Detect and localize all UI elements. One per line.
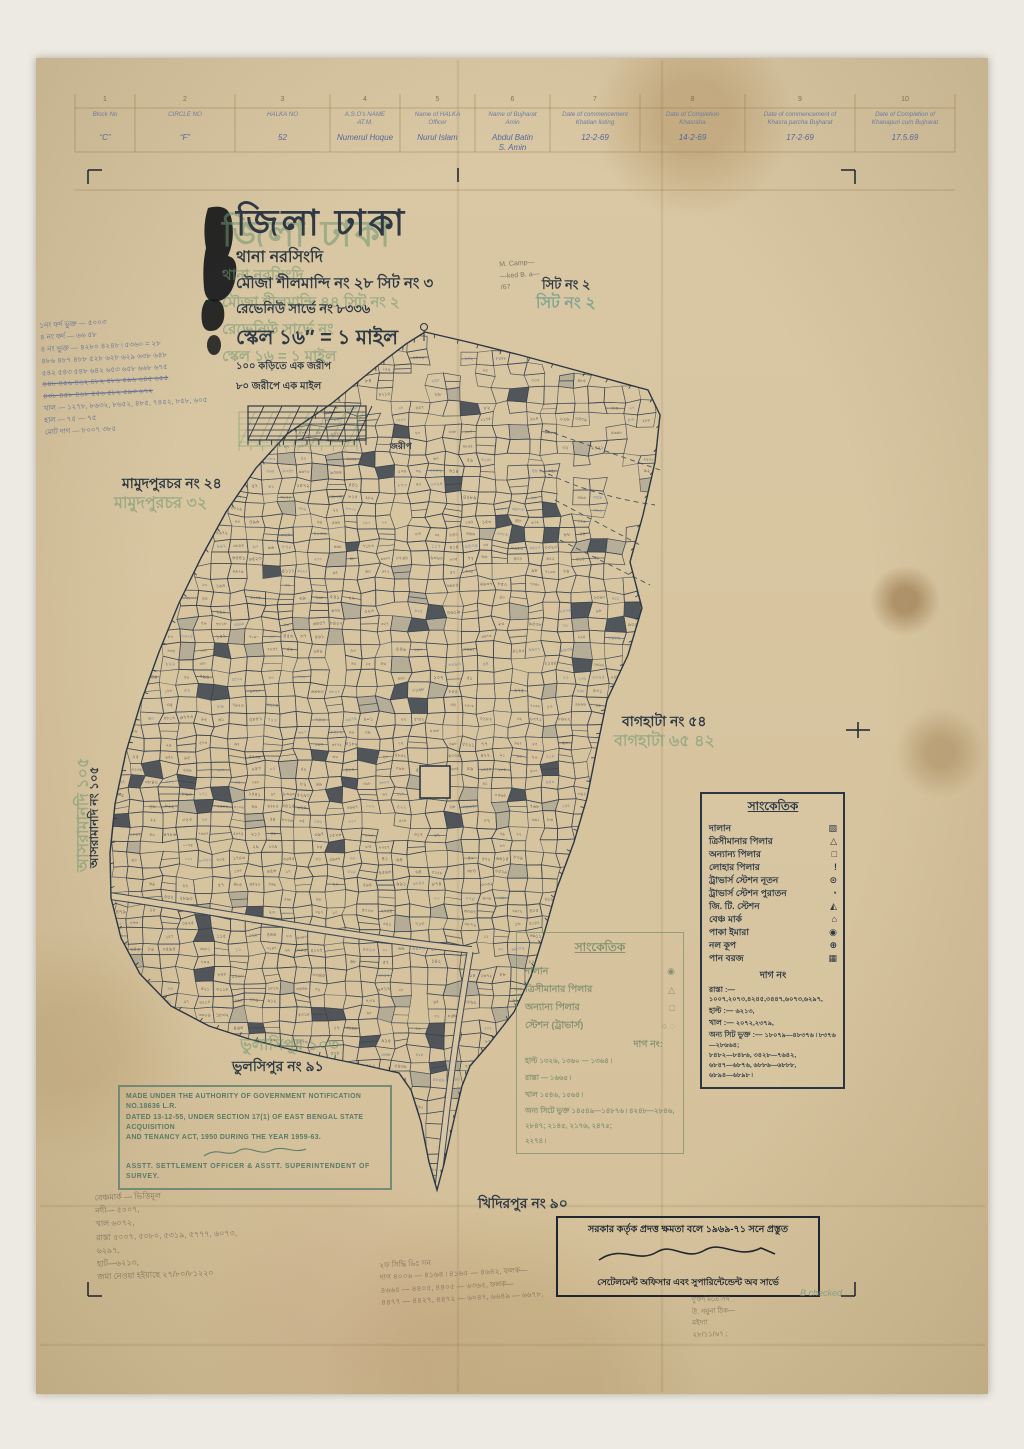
- thana-line: থানা নরসিংদি: [236, 248, 496, 268]
- table-value-cell: Nurul Islam: [400, 133, 475, 143]
- legend-item-entry: ত্রিসীমানার পিলার△: [525, 981, 675, 999]
- legend-dag-list: রাস্তা :— ১০০৭,২০৭৩,৪২৪৫,৩৪৪৭,৬০৭৩,৬২৯৭,…: [709, 984, 837, 1081]
- scale-note-2: ৮০ জরীপে এক মাইল: [236, 379, 496, 396]
- dag-entry: অন্য সিট ভুক্ত :— ১৮০৭৯—৪৮৩৭৬ ৷ ৮৩৭৬—২৮৬…: [709, 1029, 837, 1080]
- legend-item-pucca-building: পাকা ইমারা◉: [709, 926, 837, 939]
- legend-item-gt-station: জি. টি. স্টেশন◭: [709, 900, 837, 913]
- legend-faint-dag-title: দাগ নং:: [525, 1038, 675, 1053]
- dag-entry-value: ১৩২৬, ১৩৬০ — ১৩৬৪ ৷: [539, 1058, 611, 1065]
- legend-icon: ◉: [667, 963, 675, 980]
- legend-faint-title: সাংকেতিক: [525, 939, 675, 959]
- scalebar-label: জরীপ: [390, 439, 412, 454]
- dag-entry-value: — ১৬৬৫ ৷: [541, 1075, 571, 1082]
- dag-entry-label: রাস্তা: [525, 1073, 541, 1082]
- gt-station-icon: ◭: [830, 900, 837, 913]
- stamp-en-line3: AND TENANCY ACT, 1950 DURING THE YEAR 19…: [126, 1133, 384, 1143]
- dag-entry-label: হাল্ট :—: [709, 1006, 736, 1015]
- legend-item-label: অন্যান্য পিলার: [525, 999, 580, 1017]
- legend-item-betel-garden: পান বরজ▦: [709, 952, 837, 965]
- dag-entry-label: রাস্তা :—: [709, 985, 735, 994]
- legend-item-label: দালান: [709, 822, 731, 835]
- legend-item-label: ত্রিসীমানার পিলার: [525, 981, 592, 999]
- authority-stamp-en: MADE UNDER THE AUTHORITY OF GOVERNMENT N…: [118, 1085, 392, 1190]
- dag-entry-value: ১০০৭,২০৭৩,৪২৪৫,৩৪৪৭,৬০৭৩,৬২৯৭,: [709, 996, 823, 1003]
- dag-entry-value: ৬২১৩,: [736, 1008, 755, 1015]
- table-header-cell: CIRCLE NO: [135, 111, 235, 119]
- legend-item-bench-mark: বেঞ্চ মার্ক⌂: [709, 913, 837, 926]
- legend-item-entry: স্টেশন (ট্রাভার্স)○ ◌: [525, 1017, 675, 1035]
- revenue-line: রেভেনিউ সার্ভে নং ৮৩৩৬: [236, 301, 496, 317]
- survey-header-table: 1Block No“C”2CIRCLE NO“F”3HALKA NO524A.S…: [0, 0, 1024, 200]
- legend-item-traverse-station-old: ট্রাভার্স স্টেশন পুরাতন◔: [709, 887, 837, 900]
- margin-notes-bottom-right: দু'ফর্দ মতে সব উ. নমুনা ঠিক— মইদ্যা ২৮/১…: [691, 1291, 803, 1341]
- other-pillar-icon: □: [832, 848, 837, 861]
- label-mamudpurchar-ghost: মামুদপুরচর ৩২: [114, 490, 207, 517]
- mouza-line: মৌজা শীলমান্দি নং ২৮ সিট নং ৩: [236, 275, 496, 294]
- margin-notes-bottom-left: বেঞ্চমার্ক — ভিত্তিমূল নদী— ৫০০৭, খাল ৬০…: [94, 1181, 407, 1284]
- dag-entry: রাস্তা :— ১০০৭,২০৭৩,৪২৪৫,৩৪৪৭,৬০৭৩,৬২৯৭,: [709, 984, 837, 1006]
- traverse-station-old-icon: ◔: [832, 887, 837, 900]
- traverse-station-new-icon: ⊙: [829, 874, 837, 887]
- table-header-cell: Date of commencement of Khasra parcha Bu…: [745, 111, 855, 127]
- sheet-number-ghost: সিট নং ২: [536, 290, 596, 317]
- table-value-cell: 14-2-69: [640, 133, 745, 143]
- dag-entry: হাল্ট ১৩২৬, ১৩৬০ — ১৩৬৪ ৷: [525, 1053, 675, 1070]
- table-col-number: 4: [330, 96, 400, 103]
- label-tulshipur: ভুলসিপুর নং ৯১: [232, 1055, 324, 1079]
- table-header-cell: Date of commencement Khatian listing: [550, 111, 640, 127]
- legend-item-label: নল কূপ: [709, 939, 736, 952]
- table-col-number: 5: [400, 96, 475, 103]
- legend-item-label: পান বরজ: [709, 952, 744, 965]
- legend-item-label: জি. টি. স্টেশন: [709, 900, 760, 913]
- legend-faint-items: দালান◉ত্রিসীমানার পিলার△অন্যান্য পিলার□স…: [525, 963, 675, 1035]
- table-value-cell: 12-2-69: [550, 133, 640, 143]
- legend-item-label: ত্রিসীমানার পিলার: [709, 835, 773, 848]
- legend-dag-title: দাগ নং: [709, 969, 837, 984]
- legend-item-label: ট্রাভার্স স্টেশন নূতন: [709, 874, 778, 887]
- tri-junction-pillar-icon: △: [830, 835, 837, 848]
- table-value-cell: 52: [235, 133, 330, 143]
- legend-box: সাংকেতিক দালান▨ত্রিসীমানার পিলার△অন্যান্…: [700, 792, 845, 1089]
- table-value-cell: Numerul Hoque: [330, 133, 400, 143]
- scale-note-1: ১০০ কড়িতে এক জরীপ: [236, 359, 496, 376]
- legend-item-label: বেঞ্চ মার্ক: [709, 913, 742, 926]
- legend-item-iron-pillar: লোহার পিলার!: [709, 861, 837, 874]
- legend-item-hatched-building: দালান▨: [709, 822, 837, 835]
- table-col-number: 7: [550, 96, 640, 103]
- legend-item-other-pillar: অন্যান্য পিলার□: [709, 848, 837, 861]
- scanned-map-page: ৩৭৭০৫৪৭৯১১৬৮৮৬১৫৯১৩৮১৮৬২৬১৮৯৭৭৮৪৬৬৪৬১৫৪৪…: [0, 0, 1024, 1449]
- margin-notes-top-left: ১নং ফর্দ ভুক্ত — ৫০০৩৪ নং ফর্দ — ৬৬ ৫৮৪ …: [39, 308, 260, 438]
- dag-entry-label: খাল :—: [709, 1018, 736, 1027]
- dag-entry-label: খাল: [525, 1090, 540, 1099]
- legend-items: দালান▨ত্রিসীমানার পিলার△অন্যান্য পিলার□ল…: [709, 822, 837, 966]
- dag-entry-label: হাল্ট: [525, 1056, 539, 1065]
- legend-item-entry: দালান◉: [525, 963, 675, 981]
- dag-entry-value: ২০৭২,২৩৭৯,: [736, 1020, 774, 1027]
- sheet-pencil-note: M. Camp— —ked B. a— /67: [499, 257, 541, 294]
- stamp-en-line2: DATED 13-12-55, UNDER SECTION 17(1) OF E…: [126, 1113, 384, 1134]
- legend-title: সাংকেতিক: [709, 798, 837, 818]
- district-title: জিলা ঢাকা: [236, 205, 496, 241]
- table-col-number: 1: [75, 96, 135, 103]
- dag-entry: রাস্তা — ১৬৬৫ ৷: [525, 1070, 675, 1087]
- table-col-number: 2: [135, 96, 235, 103]
- table-header-cell: A.S.O's NAME AT.M.: [330, 111, 400, 127]
- label-baghata-ghost: বাগহাটা ৬৫ ৪২: [614, 728, 715, 755]
- table-value-cell: “C”: [75, 133, 135, 143]
- legend-item-tri-junction-pillar: ত্রিসীমানার পিলার△: [709, 835, 837, 848]
- iron-pillar-icon: !: [834, 861, 837, 874]
- dag-entry-label: অন্য সিটে ভুক্ত: [525, 1106, 571, 1115]
- table-header-cell: Name of HALKA Officer: [400, 111, 475, 127]
- dag-entry: খাল :— ২০৭২,২৩৭৯,: [709, 1017, 837, 1029]
- tube-well-icon: ⊕: [829, 939, 837, 952]
- scale-line: স্কেল ১৬″ = ১ মাইল: [236, 323, 496, 356]
- table-header-cell: Date of Completion of Khanapuri cum Bujh…: [855, 111, 955, 127]
- table-header-cell: Name of Bujharat Amin: [475, 111, 550, 127]
- dag-entry-label: অন্য সিট ভুক্ত :—: [709, 1030, 765, 1039]
- legend-item-tube-well: নল কূপ⊕: [709, 939, 837, 952]
- table-header-cell: HALKA NO: [235, 111, 330, 119]
- table-value-cell: 17.5.69: [855, 133, 955, 143]
- legend-item-label: লোহার পিলার: [709, 861, 760, 874]
- pucca-building-icon: ◉: [829, 926, 837, 939]
- table-col-number: 6: [475, 96, 550, 103]
- stamp-en-footer: ASSTT. SETTLEMENT OFFICER & ASSTT. SUPER…: [126, 1162, 384, 1183]
- legend-item-label: স্টেশন (ট্রাভার্স): [525, 1017, 583, 1035]
- title-block: জিলা ঢাকা থানা নরসিংদি মৌজা শীলমান্দি নং…: [236, 205, 496, 454]
- table-col-number: 9: [745, 96, 855, 103]
- hatched-building-icon: ▨: [828, 822, 837, 835]
- legend-icon: □: [670, 1000, 675, 1017]
- table-col-number: 10: [855, 96, 955, 103]
- table-value-cell: Abdul Batin S. Amin: [475, 133, 550, 154]
- table-value-cell: “F”: [135, 133, 235, 143]
- legend-item-entry: অন্যান্য পিলার□: [525, 999, 675, 1017]
- checked-note: B checked: [800, 1288, 842, 1298]
- table-col-number: 8: [640, 96, 745, 103]
- legend-faint-box: সাংকেতিক দালান◉ত্রিসীমানার পিলার△অন্যান্…: [516, 932, 684, 1154]
- dag-entry-value: ১৫৪৬, ১৫৬৪ ৷: [540, 1092, 583, 1099]
- label-left-vertical: আসরামানদি নং ১০৫: [86, 767, 106, 868]
- legend-item-label: পাকা ইমারা: [709, 926, 749, 939]
- legend-icon: △: [668, 982, 675, 999]
- dag-entry: হাল্ট :— ৬২১৩,: [709, 1005, 837, 1017]
- legend-item-label: অন্যান্য পিলার: [709, 848, 761, 861]
- legend-item-label: ট্রাভার্স স্টেশন পুরাতন: [709, 887, 787, 900]
- dag-entry: খাল ১৫৪৬, ১৫৬৪ ৷: [525, 1087, 675, 1104]
- table-header-cell: Date of Completion Khasraha: [640, 111, 745, 127]
- betel-garden-icon: ▦: [828, 952, 837, 965]
- stamp-en-line1: MADE UNDER THE AUTHORITY OF GOVERNMENT N…: [126, 1092, 384, 1113]
- table-header-cell: Block No: [75, 111, 135, 119]
- legend-item-traverse-station-new: ট্রাভার্স স্টেশন নূতন⊙: [709, 874, 837, 887]
- dag-entry: অন্য সিটে ভুক্ত ১৪৫৪৯—১৪৮৭৬ ৷ ৪২৪৮—২৮৪৬,…: [525, 1103, 675, 1149]
- legend-faint-dag-list: হাল্ট ১৩২৬, ১৩৬০ — ১৩৬৪ ৷রাস্তা — ১৬৬৫ ৷…: [525, 1053, 675, 1149]
- legend-icon: ○ ◌: [662, 1018, 675, 1035]
- label-khidirpur: খিদিরপুর নং ৯০: [478, 1192, 568, 1216]
- table-col-number: 3: [235, 96, 330, 103]
- legend-item-label: দালান: [525, 963, 548, 981]
- table-value-cell: 17-2-69: [745, 133, 855, 143]
- bench-mark-icon: ⌂: [832, 913, 837, 926]
- signature-scribble-en: [200, 1144, 310, 1160]
- stamp-bn-line1: সরকার কর্তৃক প্রদত্ত ক্ষমতা বলে ১৯৬৯-৭১ …: [564, 1223, 812, 1238]
